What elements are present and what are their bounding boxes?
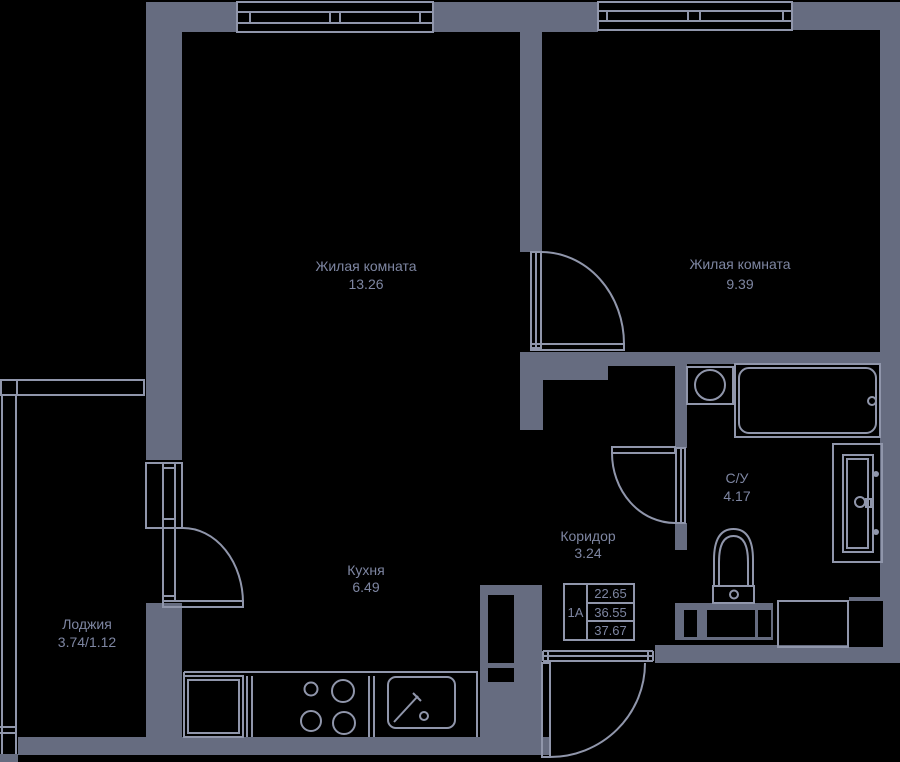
unit-areas: 22.65 36.55 37.67 xyxy=(588,585,633,639)
washing-machine-icon xyxy=(778,601,848,647)
window-living1-icon xyxy=(237,2,433,32)
room-area-loggia: 3.74/1.12 xyxy=(58,635,116,649)
bathtub-icon xyxy=(735,364,880,437)
room-label-loggia: Лоджия xyxy=(62,617,112,631)
balcony-window-icon xyxy=(146,463,182,601)
room-area-kitchen: 6.49 xyxy=(352,580,379,594)
door-living2-icon xyxy=(531,252,624,350)
towel-cabinet-icon xyxy=(833,444,882,562)
room-area-corridor: 3.24 xyxy=(574,546,601,560)
window-living2-icon xyxy=(598,2,792,30)
unit-living-area: 22.65 xyxy=(588,585,633,602)
unit-total-area: 37.67 xyxy=(588,622,633,639)
door-bathroom-icon xyxy=(612,447,685,523)
washbasin-icon xyxy=(687,367,733,404)
toilet-icon xyxy=(713,529,754,603)
room-label-living1: Жилая комната xyxy=(315,259,416,273)
room-label-bathroom: С/У xyxy=(726,471,749,485)
floor-plan: Жилая комната 13.26 Жилая комната 9.39 К… xyxy=(0,0,900,762)
room-area-living2: 9.39 xyxy=(726,277,753,291)
window-loggia-icon xyxy=(0,380,144,754)
kitchen-sink-icon xyxy=(388,677,455,728)
door-entrance-icon xyxy=(542,651,653,757)
room-label-kitchen: Кухня xyxy=(347,563,384,577)
unit-number: 1А xyxy=(565,585,588,639)
unit-area: 36.55 xyxy=(588,602,633,623)
room-area-bathroom: 4.17 xyxy=(723,489,750,503)
room-label-living2: Жилая комната xyxy=(689,257,790,271)
stove-icon xyxy=(301,680,355,734)
unit-info-box: 1А 22.65 36.55 37.67 xyxy=(563,583,635,641)
refrigerator-icon xyxy=(184,676,243,737)
plan-linework xyxy=(0,0,900,762)
room-label-corridor: Коридор xyxy=(560,529,615,543)
room-area-living1: 13.26 xyxy=(348,277,383,291)
